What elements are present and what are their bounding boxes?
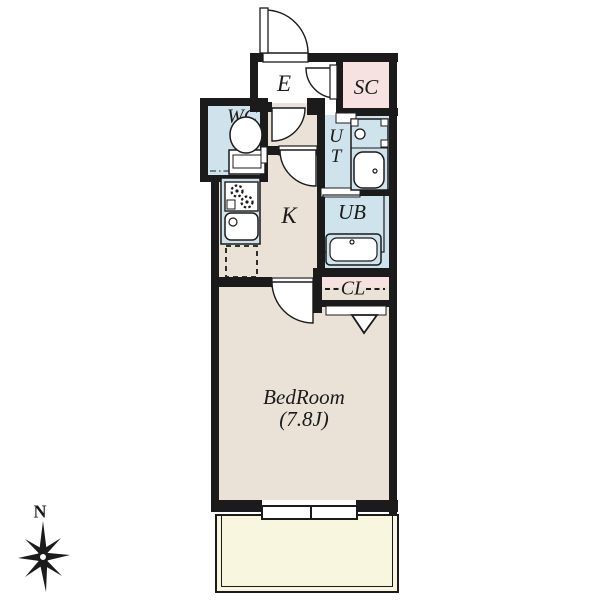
kitchen-door-arc (279, 146, 317, 186)
refrigerator-space (226, 246, 257, 277)
compass-rose (18, 521, 70, 592)
entrance-door-arc (260, 8, 308, 62)
wc-door-arc (272, 108, 305, 141)
kitchen-counter (221, 178, 260, 244)
bathtub-icon (323, 195, 384, 265)
closet-door-symbol (326, 306, 386, 333)
window-mullion (310, 507, 312, 518)
floorplan-canvas: E SC WC U T UB K CL BedRoom (7.8J) Balco… (0, 0, 600, 600)
bedroom-door-arc (272, 278, 313, 323)
toilet-icon (210, 117, 267, 174)
shoe-closet-door-arc (306, 65, 337, 99)
vanity-icon (351, 119, 388, 190)
window (261, 505, 358, 520)
kitchen-sink-icon (225, 213, 258, 240)
stove-icon (225, 182, 258, 211)
